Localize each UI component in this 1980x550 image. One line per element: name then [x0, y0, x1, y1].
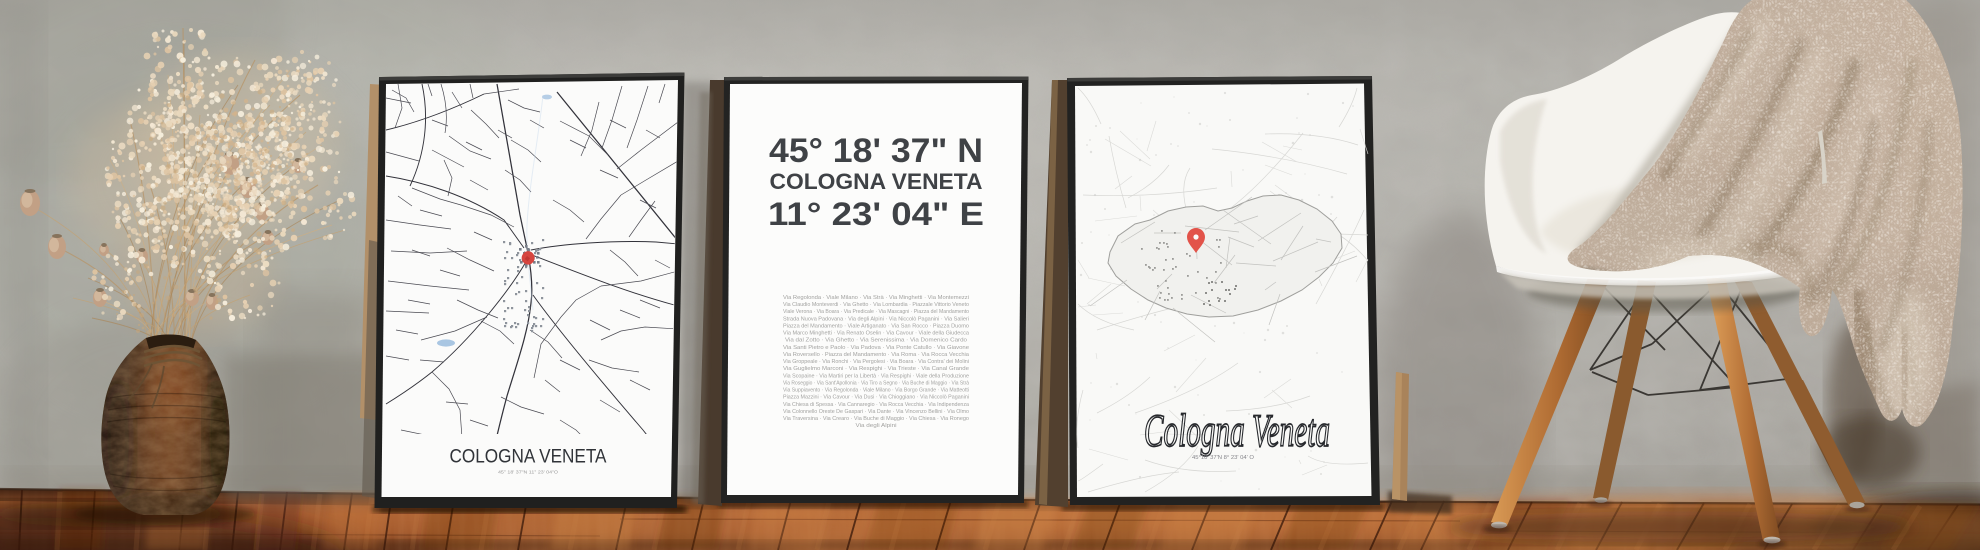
svg-text:Via dal Zotto · Via Ghetto: Via dal Zotto · Via Ghetto · Via Serenis…: [785, 338, 967, 344]
svg-text:Via Colonnello Oreste De Gaspa: Via Colonnello Oreste De Gaspari · Via D…: [783, 409, 969, 415]
svg-text:COLOGNA VENETA: COLOGNA VENETA: [770, 169, 983, 194]
svg-text:11° 23' 04" E: 11° 23' 04" E: [768, 196, 984, 232]
svg-text:Piazza Mazzini · Via Cavour: Piazza Mazzini · Via Cavour · Via Dusi ·…: [783, 395, 969, 401]
svg-text:Via Roseggio · Via Sant'Apollo: Via Roseggio · Via Sant'Apollonia · Via …: [783, 380, 969, 386]
svg-text:Via Traversina · Via Crearo: Via Traversina · Via Crearo · Via Buche …: [783, 416, 969, 422]
svg-text:Via Chiesa di Spessa · Via C: Via Chiesa di Spessa · Via Cannaregio · …: [783, 402, 969, 408]
svg-text:Via Santi Pietro e Paolo · V: Via Santi Pietro e Paolo · Via Padova · …: [783, 345, 969, 351]
svg-text:45° 18' 37" N: 45° 18' 37" N: [769, 132, 983, 170]
svg-text:Via Claudio Monteverdi · Via: Via Claudio Monteverdi · Via Ghetto · Vi…: [783, 302, 969, 308]
svg-text:Cologna Veneta: Cologna Veneta: [1144, 405, 1330, 457]
svg-text:Via Groppeale · Via Ronchi: Via Groppeale · Via Ronchi · Via Pergole…: [783, 359, 969, 365]
svg-text:Via degli Alpini: Via degli Alpini: [856, 423, 897, 429]
svg-text:Via Guglielmo Marconi · Via: Via Guglielmo Marconi · Via Respighi · V…: [783, 366, 969, 372]
svg-text:Viale Verona · Via Boara ·: Viale Verona · Via Boara · Via Predicale…: [783, 309, 969, 315]
svg-text:Via Marco Minghetti · Via Re: Via Marco Minghetti · Via Renato Oselin …: [783, 331, 969, 337]
svg-text:Strada Nuova Padovana · Via: Strada Nuova Padovana · Via degli Alpini…: [783, 316, 969, 322]
svg-text:Piazza del Mandamento · Vial: Piazza del Mandamento · Viale Artiganato…: [783, 324, 969, 330]
svg-text:Via Suppiavento · Via Regolo: Via Suppiavento · Via Regolonda · Viale …: [783, 388, 969, 394]
svg-text:Via Regolonda · Viale Milano: Via Regolonda · Viale Milano · Via Strà …: [783, 295, 969, 301]
svg-text:45°18' 37'N 8° 23' 04' O: 45°18' 37'N 8° 23' 04' O: [1192, 455, 1254, 461]
svg-text:Via Scopaine · Via Martiri p: Via Scopaine · Via Martiri per la Libert…: [783, 373, 969, 379]
svg-text:45° 18' 37"N 11° 23' 04"O: 45° 18' 37"N 11° 23' 04"O: [498, 470, 558, 475]
svg-text:Via Roversello · Piazza del: Via Roversello · Piazza del Mandamento ·…: [783, 352, 969, 358]
svg-text:COLOGNA VENETA: COLOGNA VENETA: [450, 447, 607, 468]
